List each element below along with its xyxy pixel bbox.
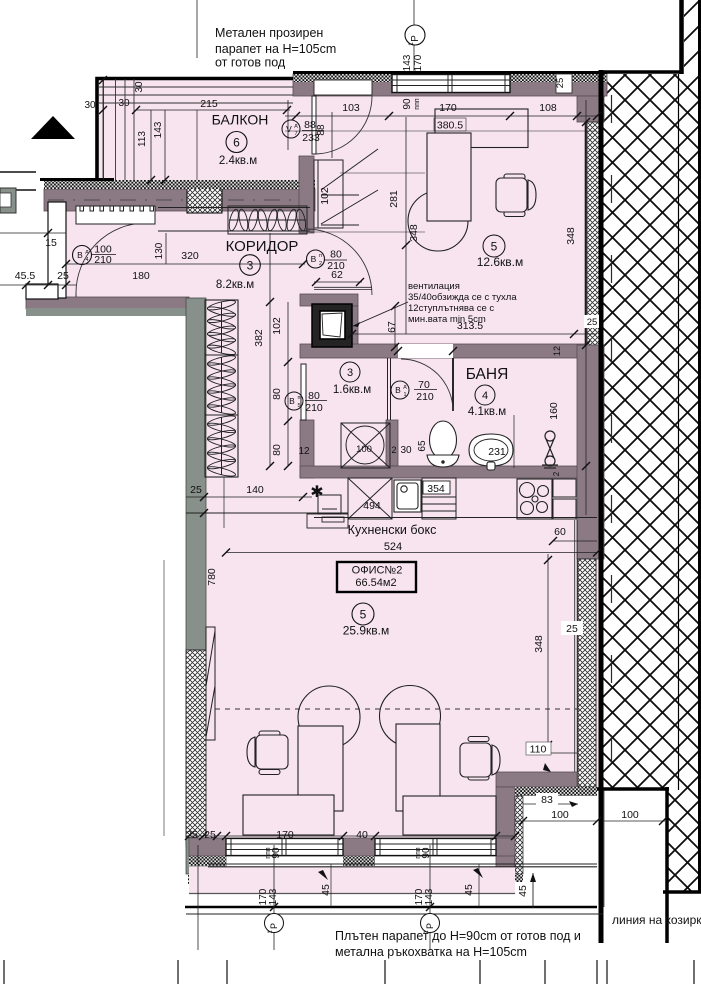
svg-text:2.4кв.м: 2.4кв.м xyxy=(219,155,257,167)
svg-text:парапет на H=105cm: парапет на H=105cm xyxy=(215,42,336,56)
svg-text:B: B xyxy=(77,250,83,260)
svg-text:380.5: 380.5 xyxy=(437,120,463,132)
svg-text:45: 45 xyxy=(463,884,475,896)
svg-text:170: 170 xyxy=(413,54,424,71)
svg-text:30: 30 xyxy=(84,100,96,111)
svg-text:КОРИДОР: КОРИДОР xyxy=(226,238,299,255)
svg-text:45.5: 45.5 xyxy=(15,270,36,282)
svg-text:231: 231 xyxy=(488,446,506,458)
svg-text:вентилация: вентилация xyxy=(408,281,460,292)
svg-text:80: 80 xyxy=(330,249,342,261)
svg-text:6: 6 xyxy=(233,136,240,150)
svg-text:12ступлътнява се с: 12ступлътнява се с xyxy=(408,303,494,314)
svg-text:382: 382 xyxy=(253,329,265,347)
svg-text:3: 3 xyxy=(247,259,254,273)
svg-text:88: 88 xyxy=(316,124,327,136)
svg-text:от готов под: от готов под xyxy=(215,56,286,70)
svg-text:1: 1 xyxy=(408,42,415,46)
svg-text:12: 12 xyxy=(298,446,310,457)
svg-text:1: 1 xyxy=(403,392,406,398)
svg-text:348: 348 xyxy=(408,224,420,242)
svg-text:524: 524 xyxy=(384,541,402,553)
svg-text:12.6кв.м: 12.6кв.м xyxy=(477,255,524,269)
svg-text:143: 143 xyxy=(424,888,435,905)
svg-text:1.6кв.м: 1.6кв.м xyxy=(333,384,371,396)
svg-text:25.9кв.м: 25.9кв.м xyxy=(343,624,390,638)
svg-text:Метален прозирен: Метален прозирен xyxy=(215,26,323,40)
svg-text:281: 281 xyxy=(388,190,400,208)
svg-text:348: 348 xyxy=(533,635,545,653)
svg-text:4: 4 xyxy=(85,257,88,263)
svg-text:160: 160 xyxy=(548,402,560,420)
svg-text:143: 143 xyxy=(268,888,279,905)
svg-text:65: 65 xyxy=(417,440,428,452)
svg-text:45: 45 xyxy=(517,885,529,897)
svg-text:90: 90 xyxy=(271,847,282,859)
svg-text:B: B xyxy=(395,385,401,395)
svg-text:5: 5 xyxy=(297,403,300,409)
svg-text:108: 108 xyxy=(539,102,557,114)
svg-text:180: 180 xyxy=(132,270,150,282)
svg-text:5: 5 xyxy=(491,240,498,254)
svg-text:320: 320 xyxy=(181,250,199,262)
svg-text:Плътен парапет до H=90cm от го: Плътен парапет до H=90cm от готов под и xyxy=(335,929,581,943)
svg-text:2: 2 xyxy=(319,261,322,267)
svg-text:113: 113 xyxy=(137,131,148,147)
svg-text:215: 215 xyxy=(200,98,218,110)
svg-text:83: 83 xyxy=(541,794,553,806)
svg-text:P: P xyxy=(269,923,279,929)
svg-text:80: 80 xyxy=(271,388,283,400)
svg-text:2: 2 xyxy=(391,445,396,455)
svg-text:30: 30 xyxy=(134,81,145,93)
svg-text:12: 12 xyxy=(552,346,562,356)
svg-text:210: 210 xyxy=(416,391,434,403)
svg-text:V: V xyxy=(286,124,292,134)
svg-text:P: P xyxy=(410,35,421,42)
svg-text:3: 3 xyxy=(347,367,353,379)
svg-text:25: 25 xyxy=(57,270,69,282)
svg-text:25: 25 xyxy=(190,484,202,496)
svg-text:30: 30 xyxy=(400,445,412,456)
svg-text:25: 25 xyxy=(566,623,578,635)
svg-text:15: 15 xyxy=(45,237,57,249)
svg-text:ппп: ппп xyxy=(414,98,421,110)
svg-text:4.1кв.м: 4.1кв.м xyxy=(468,406,506,418)
svg-text:313.5: 313.5 xyxy=(457,320,483,332)
svg-text:4: 4 xyxy=(482,390,488,402)
svg-text:102: 102 xyxy=(319,187,331,205)
svg-text:B: B xyxy=(289,396,295,406)
svg-text:170: 170 xyxy=(439,102,457,114)
svg-text:90: 90 xyxy=(421,847,432,859)
svg-text:2: 2 xyxy=(552,471,561,476)
svg-text:103: 103 xyxy=(342,102,360,114)
svg-text:п: п xyxy=(319,253,322,259)
svg-text:67: 67 xyxy=(386,321,398,333)
svg-text:8.2кв.м: 8.2кв.м xyxy=(216,279,254,291)
svg-text:80: 80 xyxy=(271,444,283,456)
svg-text:метална ръкохватка на H=105cm: метална ръкохватка на H=105cm xyxy=(335,945,527,959)
svg-text:66.54м2: 66.54м2 xyxy=(355,577,396,589)
svg-text:30: 30 xyxy=(118,98,130,109)
svg-text:494: 494 xyxy=(363,500,381,512)
svg-text:143: 143 xyxy=(153,121,164,138)
svg-text:140: 140 xyxy=(246,484,264,496)
svg-text:25: 25 xyxy=(204,829,216,841)
svg-text:354: 354 xyxy=(427,483,445,495)
svg-text:✱: ✱ xyxy=(310,484,323,501)
svg-text:170: 170 xyxy=(276,829,294,841)
svg-text:110: 110 xyxy=(530,744,547,756)
svg-text:143: 143 xyxy=(402,54,413,71)
svg-text:90: 90 xyxy=(402,98,413,110)
svg-text:БАНЯ: БАНЯ xyxy=(466,366,509,383)
svg-text:102: 102 xyxy=(271,317,283,335)
svg-text:210: 210 xyxy=(94,254,112,266)
svg-text:62: 62 xyxy=(331,269,343,281)
svg-text:780: 780 xyxy=(206,568,218,586)
svg-text:100: 100 xyxy=(356,444,372,455)
svg-text:линия на козирк: линия на козирк xyxy=(612,913,701,927)
svg-text:25: 25 xyxy=(587,317,598,328)
svg-text:210: 210 xyxy=(305,402,323,414)
svg-text:45: 45 xyxy=(320,884,332,896)
svg-text:7: 7 xyxy=(294,131,297,137)
svg-text:п: п xyxy=(298,395,301,401)
svg-text:60: 60 xyxy=(554,526,566,538)
svg-text:40: 40 xyxy=(356,829,368,841)
svg-text:ОФИС№2: ОФИС№2 xyxy=(352,565,403,577)
svg-text:100: 100 xyxy=(621,809,639,821)
svg-text:БАЛКОН: БАЛКОН xyxy=(212,112,269,128)
svg-text:348: 348 xyxy=(565,227,577,245)
svg-text:100: 100 xyxy=(551,809,569,821)
svg-text:88: 88 xyxy=(304,119,316,131)
svg-text:25: 25 xyxy=(186,829,198,841)
svg-text:35/40обзижда се с тухла: 35/40обзижда се с тухла xyxy=(408,292,517,303)
svg-text:130: 130 xyxy=(154,242,165,259)
svg-text:25: 25 xyxy=(555,78,566,89)
svg-text:5: 5 xyxy=(360,608,367,622)
svg-text:Кухненски бокс: Кухненски бокс xyxy=(348,523,437,537)
svg-text:B: B xyxy=(311,254,317,264)
